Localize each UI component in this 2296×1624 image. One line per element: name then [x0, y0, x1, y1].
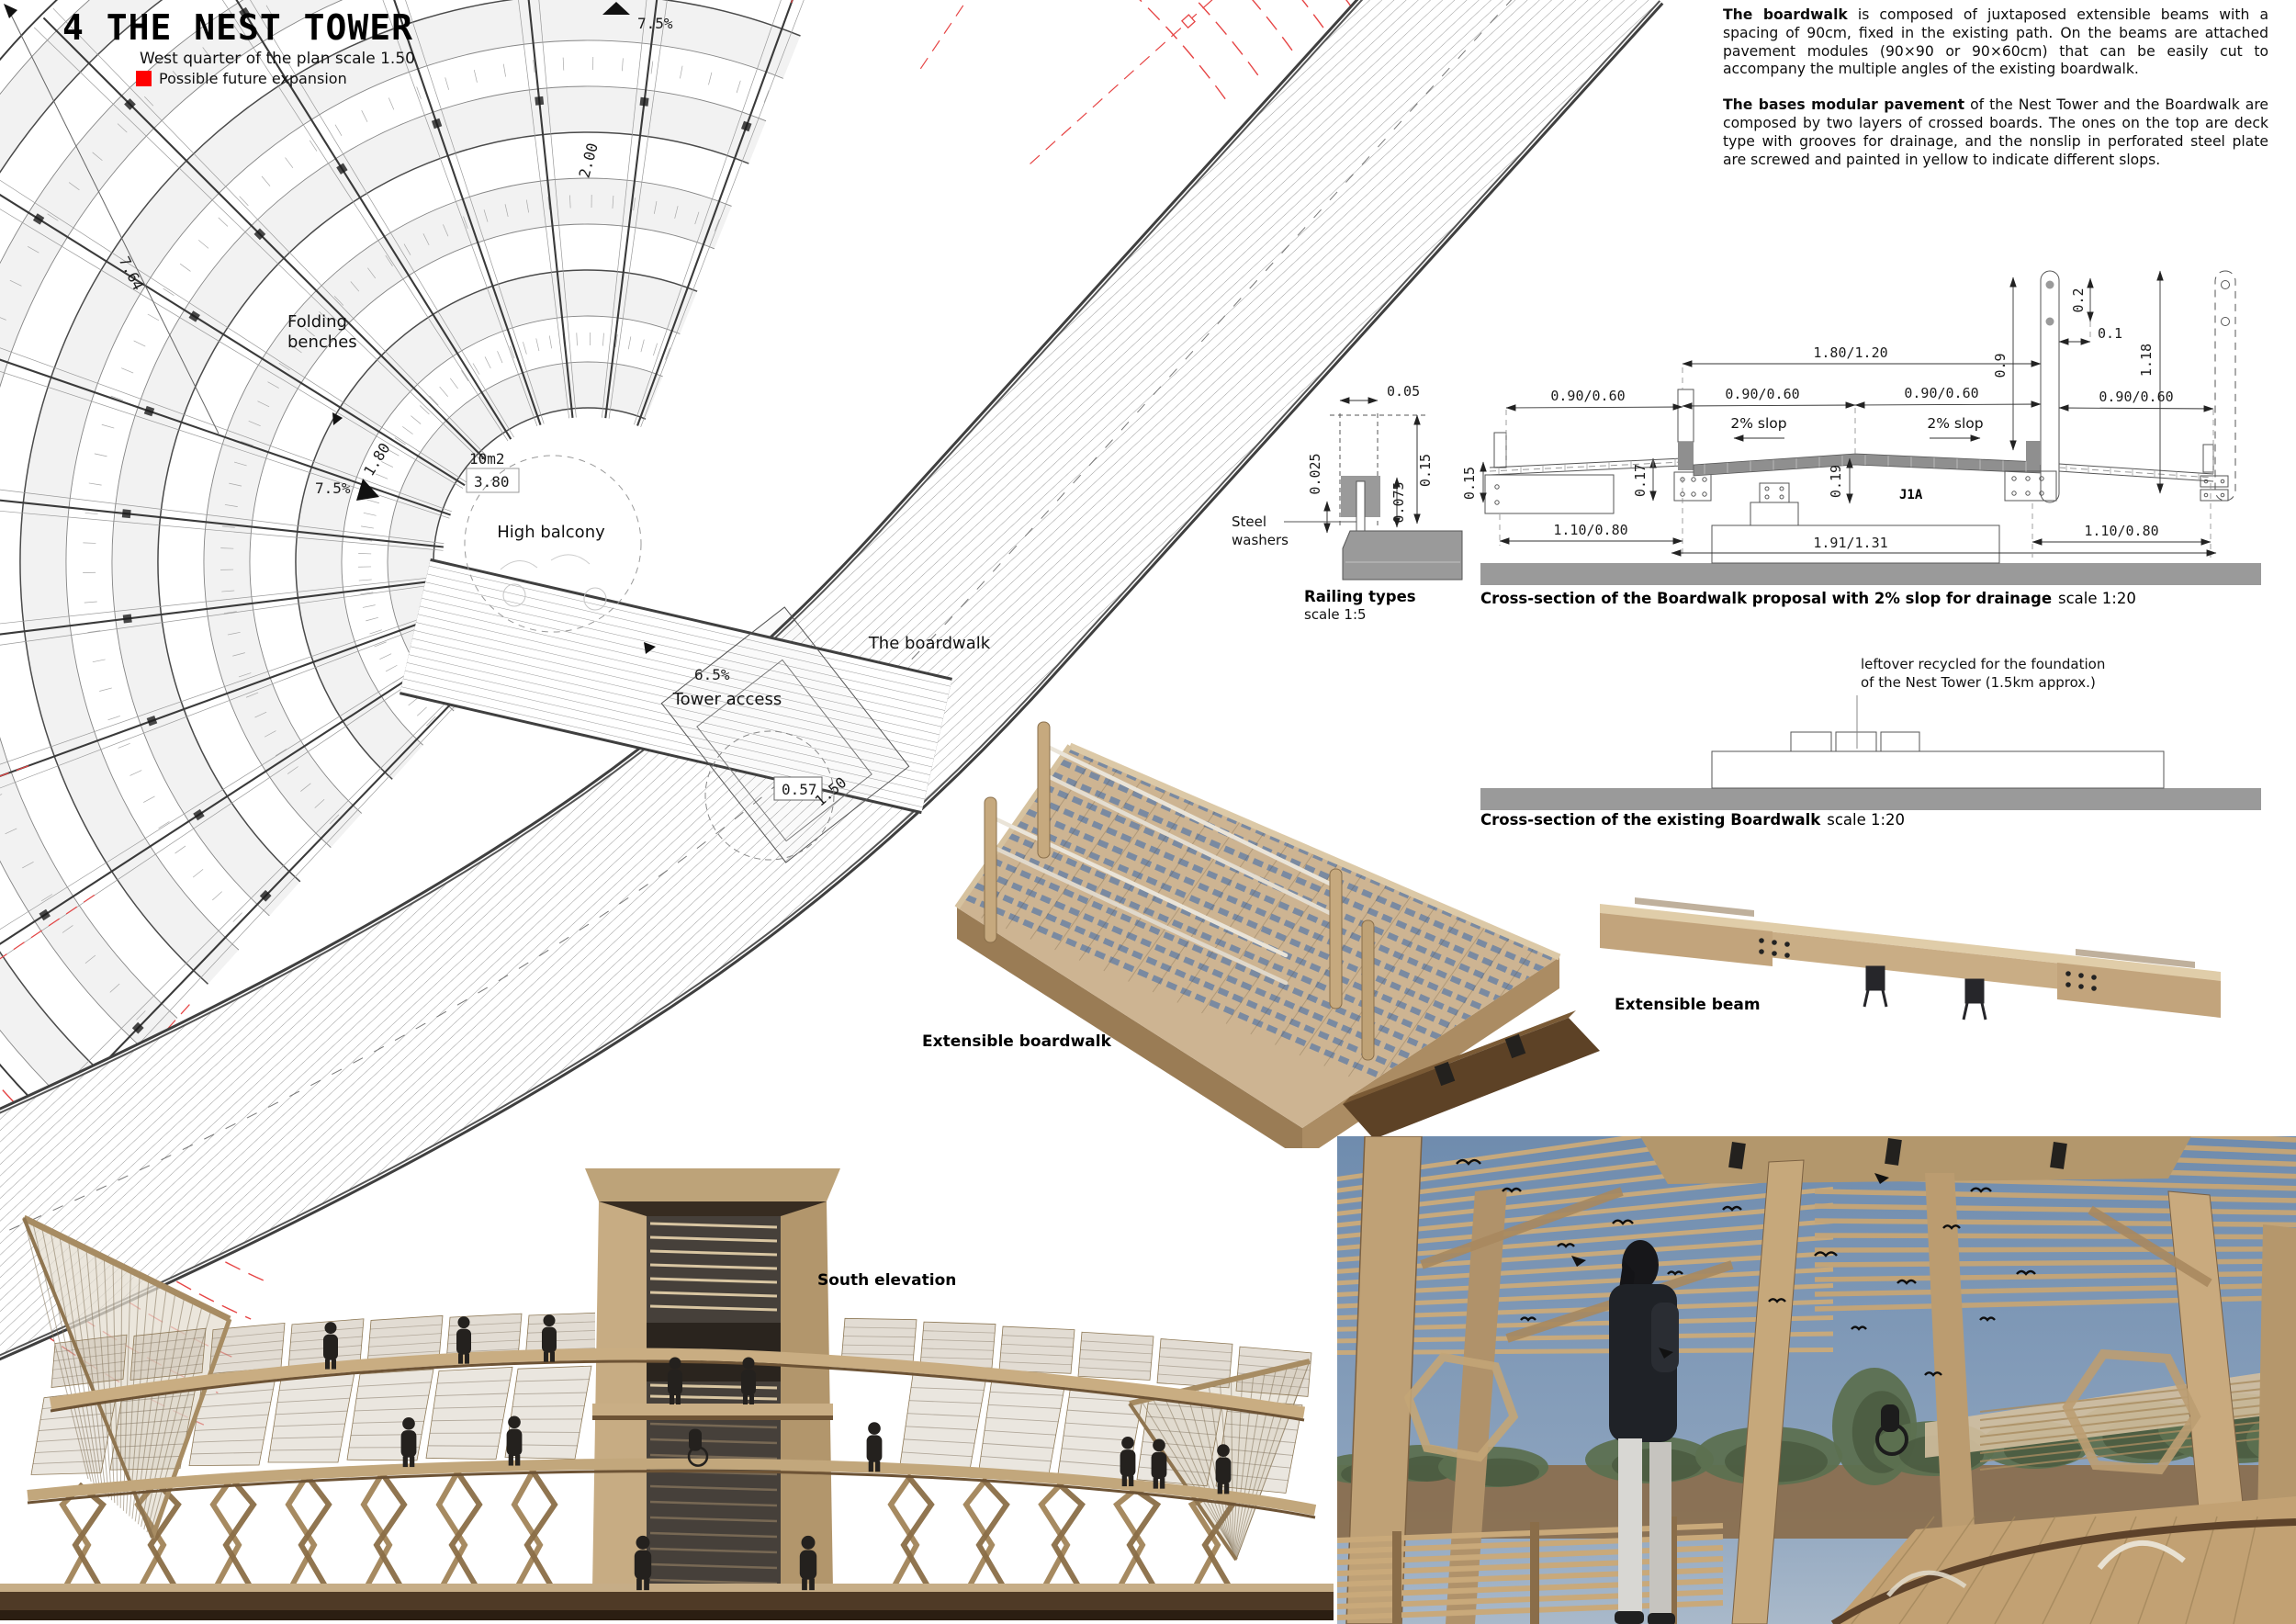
description-lead-2: The bases modular pavement [1723, 96, 1964, 113]
recycling-note: leftover recycled for the foundation of … [1861, 656, 2136, 692]
tower-structure [0, 1168, 1334, 1620]
extensible-boardwalk-render [900, 689, 1635, 1148]
existing-caption: Cross-section of the existing Boardwalks… [1480, 811, 1905, 829]
railing-dim-mid: 0.075 [1390, 481, 1407, 523]
presentation-board: { "page": {"width": 2500, "height": 1768… [0, 0, 2296, 1624]
railing-dim-top: 0.05 [1387, 383, 1420, 400]
railing-dim-left: 0.025 [1307, 453, 1323, 494]
south-elevation-label: South elevation [817, 1271, 956, 1290]
legend-color-swatch [136, 71, 152, 86]
legend: Possible future expansion [136, 70, 347, 87]
title-block: 4 THE NEST TOWER [62, 7, 413, 48]
description-paragraph-2: The bases modular pavement of the Nest T… [1723, 96, 2268, 169]
dim-module-1: 0.90/0.60 [1550, 388, 1625, 404]
existing-caption-bold: Cross-section of the existing Boardwalk [1480, 811, 1820, 829]
dimension-lines [1483, 271, 2216, 553]
page-title: 4 THE NEST TOWER [62, 7, 413, 48]
railing-title: Railing types [1304, 588, 1416, 605]
dim-rail-offset: 0.1 [2098, 325, 2122, 342]
proposal-caption-bold: Cross-section of the Boardwalk proposal … [1480, 590, 2052, 607]
dim-span-total: 1.80/1.20 [1813, 344, 1887, 361]
proposal-caption: Cross-section of the Boardwalk proposal … [1480, 590, 2136, 607]
steel-washers-callout2: washers [1232, 532, 1289, 548]
plan-subtitle: West quarter of the plan scale 1.50 [140, 50, 415, 68]
extensible-beam-label: Extensible beam [1615, 996, 1761, 1014]
railing-scale: scale 1:5 [1304, 606, 1367, 623]
description-paragraph-1: The boardwalk is composed of juxtaposed … [1723, 6, 2268, 79]
dim-module-2: 0.90/0.60 [1725, 386, 1799, 402]
dim-h-right: 0.19 [1828, 465, 1844, 498]
dim-base-right: 1.10/0.80 [2084, 523, 2158, 539]
recycling-note-line2: of the Nest Tower (1.5km approx.) [1861, 674, 2136, 693]
dim-h-rail: 0.9 [1992, 353, 2009, 378]
extensible-beam-render [1580, 863, 2241, 1066]
dim-base-left: 1.10/0.80 [1553, 522, 1627, 538]
dim-module-4: 0.90/0.60 [2099, 389, 2173, 405]
south-elevation-render [0, 1130, 1334, 1624]
dim-rail-spacing: 0.2 [2070, 288, 2087, 312]
joint-label: J1A [1899, 488, 1923, 502]
recycling-note-line1: leftover recycled for the foundation [1861, 656, 2136, 674]
slope-label-right: 2% slop [1927, 415, 1983, 432]
description-block: The boardwalk is composed of juxtaposed … [1723, 6, 2268, 186]
railing-dim-right: 0.15 [1417, 454, 1434, 487]
dim-h-post: 1.18 [2138, 344, 2155, 377]
description-lead-1: The boardwalk [1723, 6, 1848, 23]
existing-caption-scale: scale 1:20 [1827, 811, 1905, 829]
steel-washers-callout: Steel [1232, 513, 1266, 530]
dim-h-left: 0.17 [1632, 464, 1649, 497]
dim-base-center: 1.91/1.31 [1813, 535, 1887, 551]
dim-module-3: 0.90/0.60 [1904, 385, 1978, 401]
slope-label-left: 2% slop [1730, 415, 1786, 432]
extensible-boardwalk-label: Extensible boardwalk [922, 1032, 1111, 1051]
proposal-caption-scale: scale 1:20 [2058, 590, 2136, 607]
interior-view-render [1337, 1136, 2296, 1624]
legend-label: Possible future expansion [159, 70, 347, 87]
dim-h-deck: 0.15 [1461, 467, 1478, 500]
